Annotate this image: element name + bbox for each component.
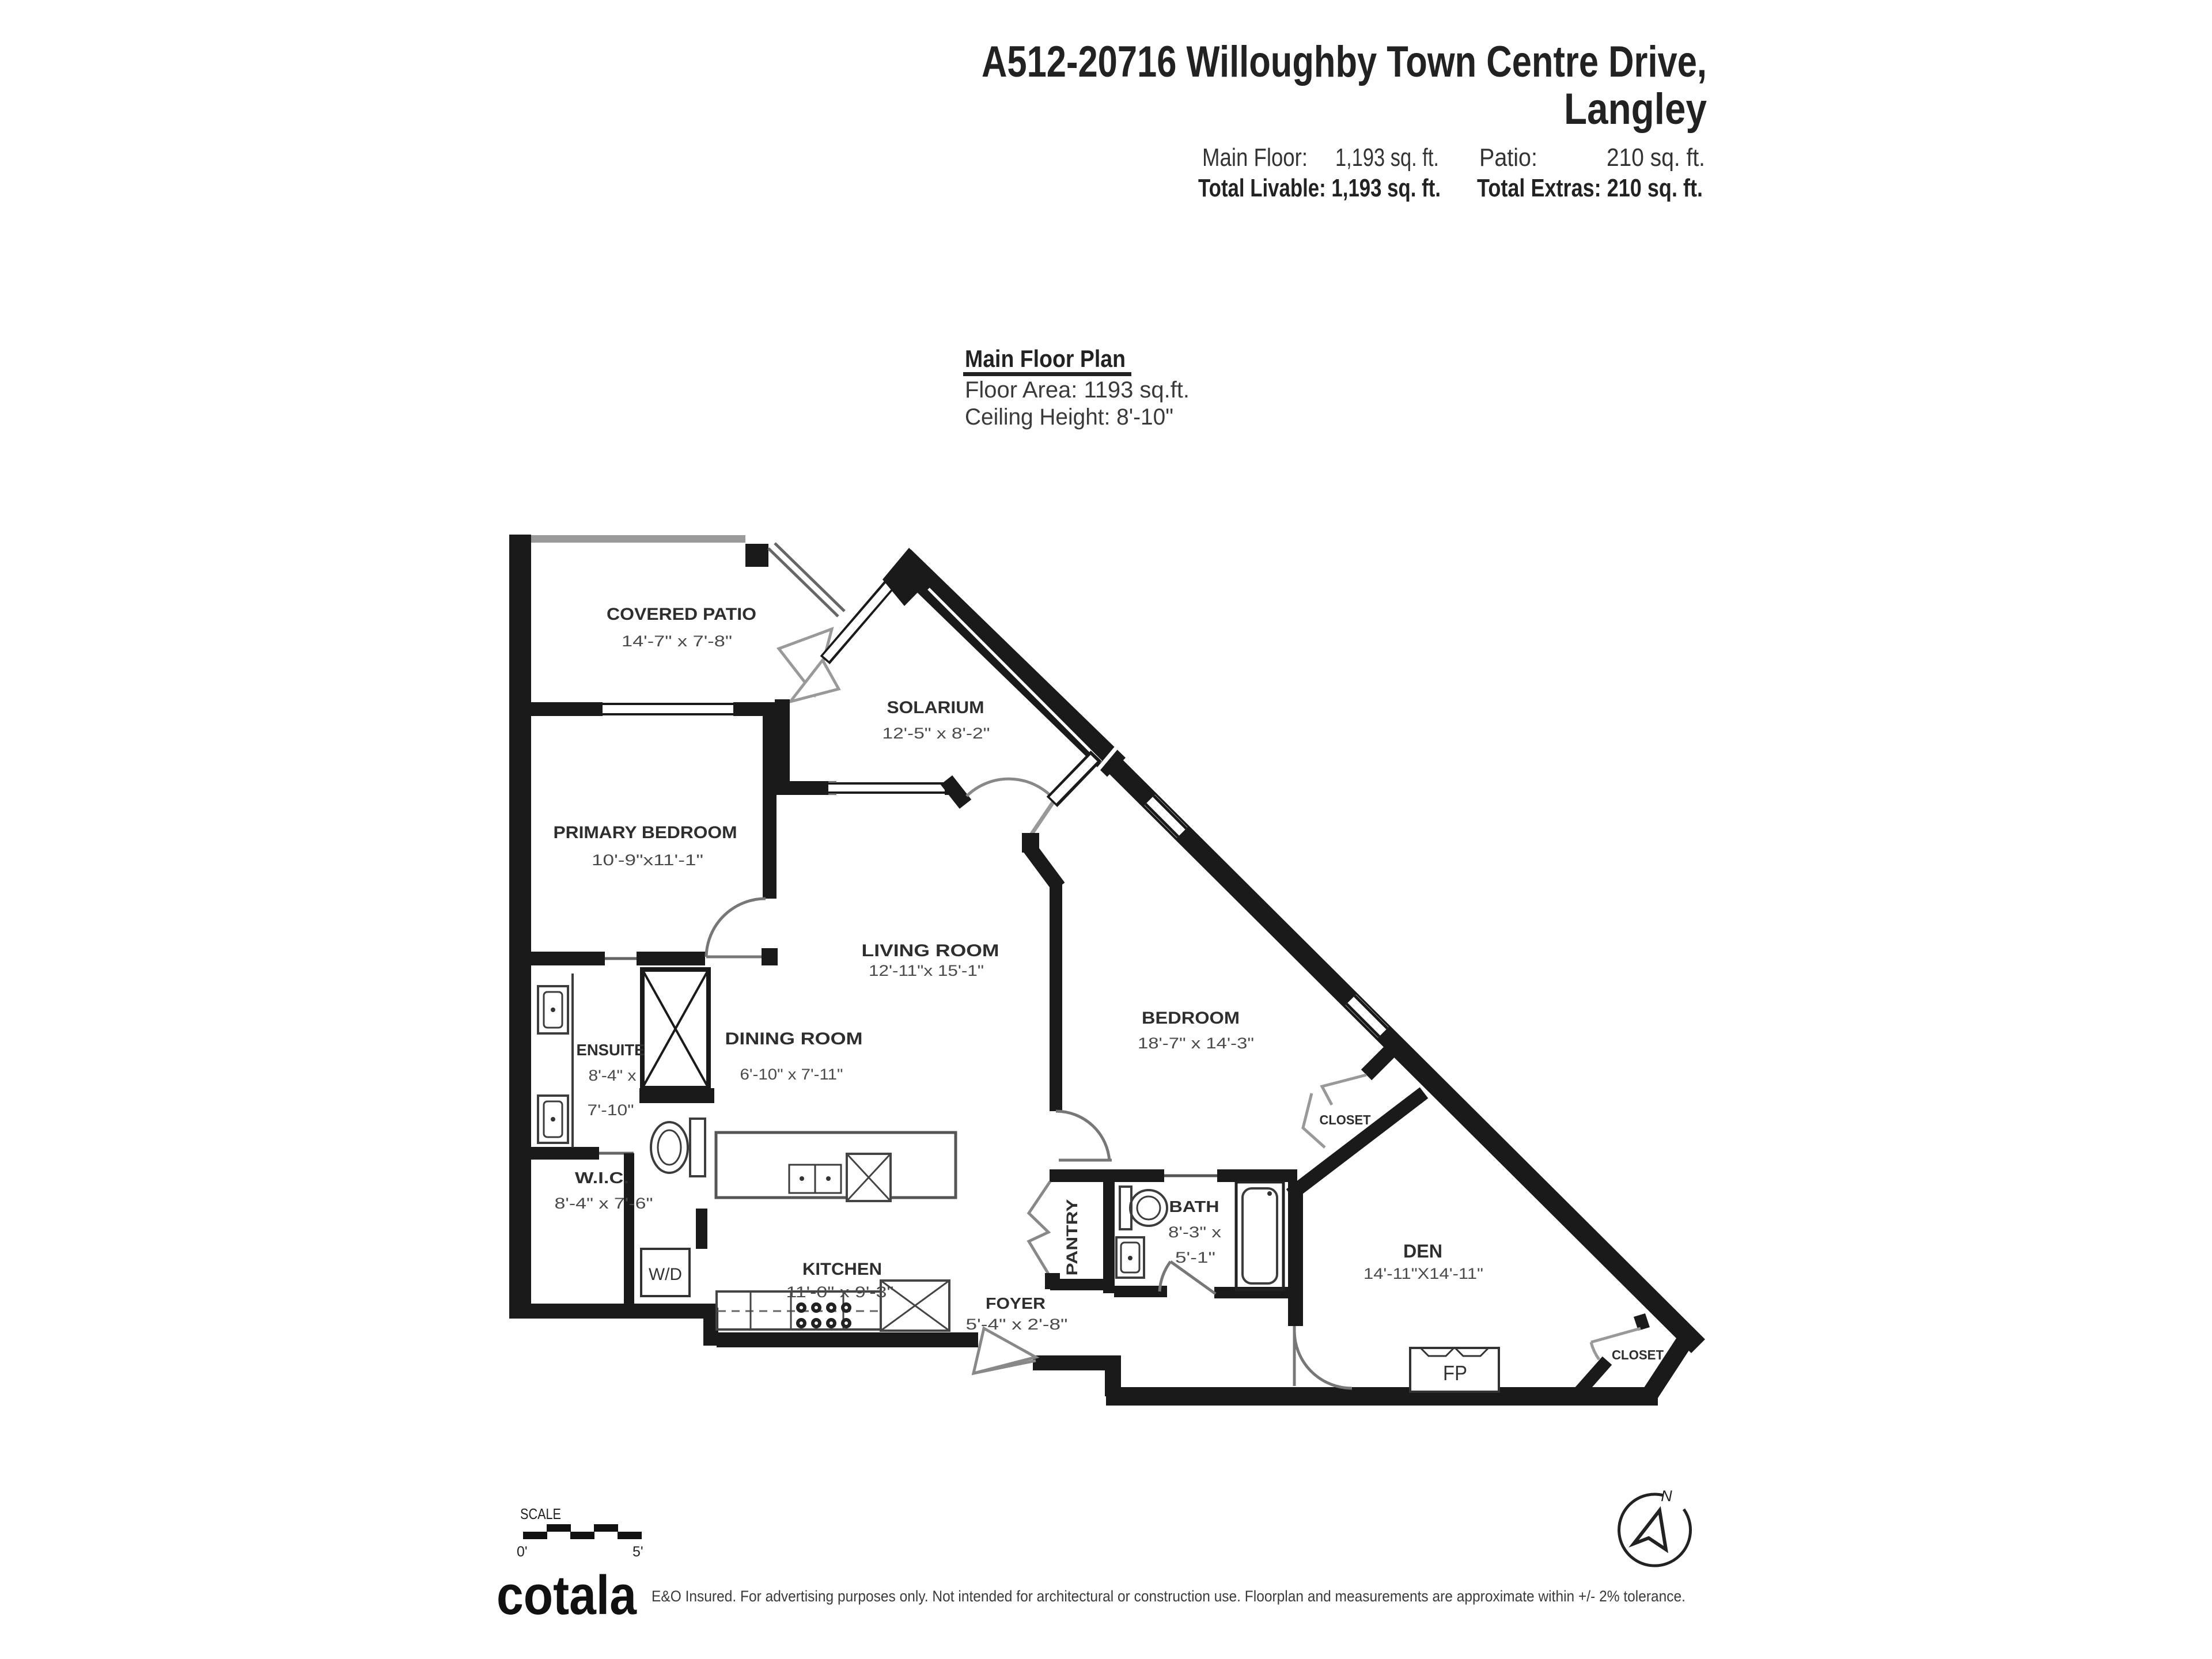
svg-text:SCALE: SCALE: [520, 1505, 561, 1522]
svg-text:E&O Insured. For advertising p: E&O Insured. For advertising purposes on…: [652, 1588, 1685, 1605]
svg-text:Main Floor Plan: Main Floor Plan: [965, 345, 1126, 372]
svg-text:PRIMARY BEDROOM: PRIMARY BEDROOM: [554, 823, 737, 842]
svg-text:8'-4" x 7'-6": 8'-4" x 7'-6": [555, 1195, 653, 1212]
svg-text:8'-4" x: 8'-4" x: [589, 1067, 637, 1084]
svg-text:14'-7" x 7'-8": 14'-7" x 7'-8": [622, 632, 732, 650]
svg-text:8'-3" x: 8'-3" x: [1168, 1224, 1222, 1241]
svg-text:FP: FP: [1443, 1361, 1467, 1385]
svg-text:Total Livable: 1,193 sq. ft.: Total Livable: 1,193 sq. ft.: [1198, 174, 1441, 202]
svg-text:cotala: cotala: [497, 1565, 637, 1626]
svg-text:Main Floor:: Main Floor:: [1202, 143, 1308, 172]
svg-text:LIVING ROOM: LIVING ROOM: [862, 941, 999, 960]
svg-text:6'-10" x 7'-11": 6'-10" x 7'-11": [740, 1066, 843, 1083]
svg-text:12'-11"x 15'-1": 12'-11"x 15'-1": [869, 962, 984, 979]
svg-text:DEN: DEN: [1403, 1241, 1442, 1262]
svg-text:CLOSET: CLOSET: [1612, 1347, 1664, 1362]
svg-text:N: N: [1661, 1487, 1672, 1505]
svg-text:12'-5" x 8'-2": 12'-5" x 8'-2": [882, 725, 990, 742]
svg-text:0': 0': [517, 1544, 528, 1560]
svg-text:11'-0" x 9'-3": 11'-0" x 9'-3": [786, 1283, 894, 1301]
svg-text:BATH: BATH: [1169, 1198, 1219, 1215]
svg-text:W/D: W/D: [649, 1265, 682, 1284]
svg-text:COVERED PATIO: COVERED PATIO: [607, 605, 756, 624]
svg-text:210 sq. ft.: 210 sq. ft.: [1607, 143, 1705, 172]
svg-text:BEDROOM: BEDROOM: [1142, 1009, 1240, 1028]
svg-text:14'-11"X14'-11": 14'-11"X14'-11": [1363, 1265, 1483, 1282]
svg-text:Floor Area: 1193 sq.ft.: Floor Area: 1193 sq.ft.: [965, 377, 1190, 403]
svg-text:18'-7" x 14'-3": 18'-7" x 14'-3": [1138, 1035, 1254, 1052]
svg-text:KITCHEN: KITCHEN: [802, 1260, 882, 1279]
svg-text:Ceiling Height: 8'-10": Ceiling Height: 8'-10": [965, 404, 1173, 430]
svg-text:7'-10": 7'-10": [588, 1101, 634, 1119]
svg-text:Patio:: Patio:: [1479, 143, 1537, 172]
svg-text:W.I.C.: W.I.C.: [575, 1169, 629, 1187]
svg-text:10'-9"x11'-1": 10'-9"x11'-1": [592, 851, 703, 869]
svg-text:A512-20716 Willoughby Town Cen: A512-20716 Willoughby Town Centre Drive,: [982, 37, 1707, 86]
svg-text:PANTRY: PANTRY: [1063, 1199, 1081, 1276]
svg-text:CLOSET: CLOSET: [1320, 1112, 1371, 1127]
svg-text:1,193 sq. ft.: 1,193 sq. ft.: [1335, 143, 1439, 172]
svg-text:ENSUITE: ENSUITE: [577, 1041, 645, 1059]
svg-text:Total Extras: 210 sq. ft.: Total Extras: 210 sq. ft.: [1477, 174, 1703, 202]
svg-text:5'-1": 5'-1": [1175, 1249, 1215, 1266]
svg-text:SOLARIUM: SOLARIUM: [887, 698, 984, 717]
svg-text:FOYER: FOYER: [986, 1294, 1046, 1312]
svg-text:DINING ROOM: DINING ROOM: [725, 1029, 863, 1048]
svg-text:5'-4" x 2'-8": 5'-4" x 2'-8": [966, 1316, 1068, 1333]
svg-text:5': 5': [632, 1544, 643, 1560]
svg-text:Langley: Langley: [1564, 85, 1707, 134]
